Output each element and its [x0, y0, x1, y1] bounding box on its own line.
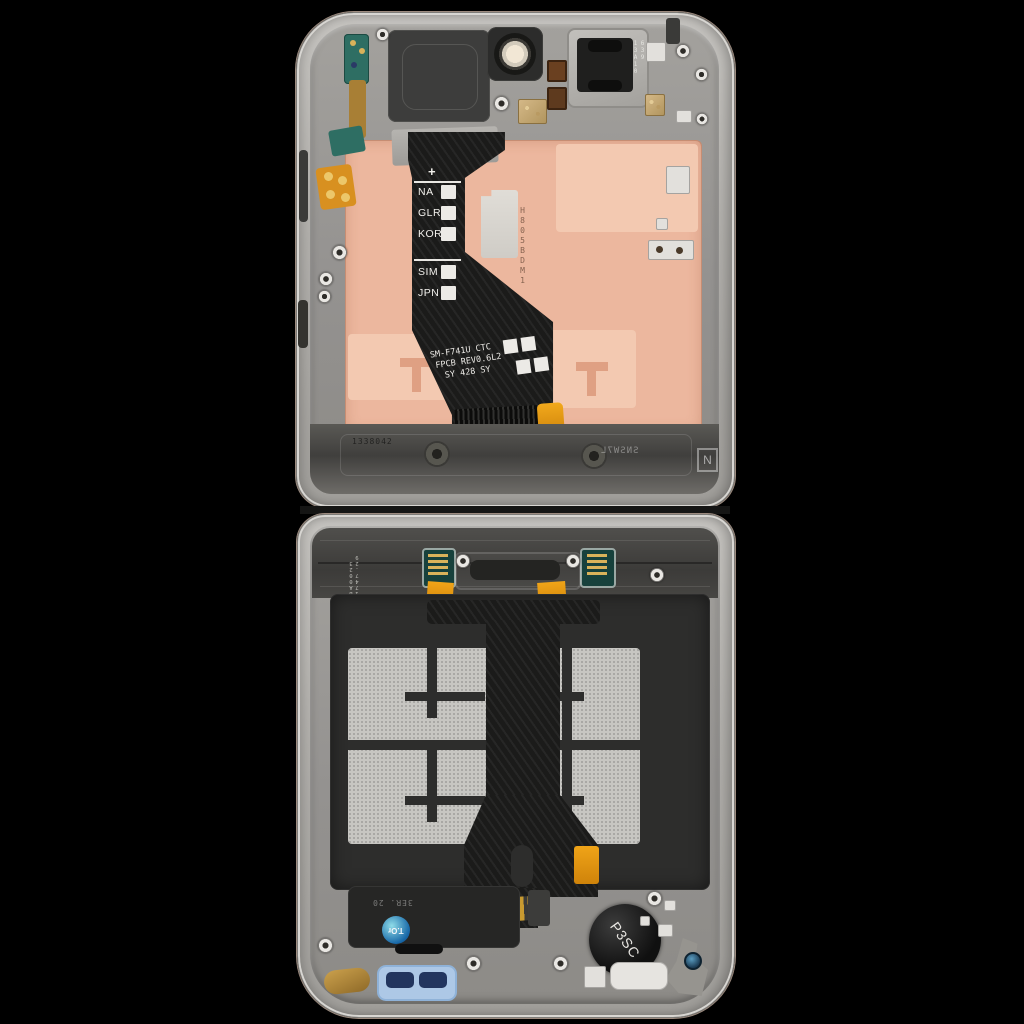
antenna-gold-pad — [645, 94, 665, 116]
screw-boss — [424, 441, 450, 467]
screw — [494, 96, 509, 111]
region-checkbox — [441, 265, 456, 279]
bottom-flex-strap — [486, 620, 560, 805]
screw — [650, 568, 664, 582]
flex-divider-line — [414, 259, 461, 261]
region-label-glr: GLR — [418, 207, 441, 219]
speaker-stamp-text: 3ER. 20 — [372, 898, 413, 907]
gasket-slot — [386, 972, 414, 988]
small-component — [656, 218, 668, 230]
region-label-sim: SIM — [418, 266, 438, 278]
gold-contact-dot — [341, 193, 350, 202]
antenna-contact — [666, 18, 680, 44]
side-antenna-slot — [299, 150, 308, 222]
band-ridge — [320, 540, 710, 541]
screw — [319, 272, 333, 286]
pcb-t-mark — [587, 362, 596, 396]
sensor-pcb-pad — [350, 40, 356, 46]
screw — [318, 290, 331, 303]
region-label-kor: KOR — [418, 228, 442, 240]
region-checkbox — [441, 227, 456, 241]
flex-plus-mark: + — [428, 164, 436, 179]
bracket-two-hole — [648, 240, 694, 260]
small-component — [640, 916, 650, 926]
product-photo-stage: 639 13A10 + NA GLR KOR — [0, 0, 1024, 1024]
sensor-pcb-pad — [351, 62, 357, 68]
region-checkbox — [441, 286, 456, 300]
qc-sticker: T.Or — [382, 916, 410, 944]
small-component — [658, 924, 673, 937]
flex-white-square — [533, 356, 549, 372]
region-checkbox — [441, 206, 456, 220]
loudspeaker-box — [348, 886, 520, 948]
patch-cut-bar — [405, 692, 485, 701]
frame-stamp-right: SNSW7L — [600, 446, 639, 456]
screw — [332, 245, 347, 260]
bracket-hole — [656, 246, 663, 253]
screw — [318, 938, 333, 953]
ic-chip-white — [481, 190, 518, 258]
copper-contact — [547, 60, 567, 82]
flex-white-square — [516, 359, 532, 375]
flex-white-square — [503, 338, 519, 354]
gold-contact-flex — [315, 164, 356, 211]
bottom-edge-code: BA0023 1747.29 — [348, 544, 360, 596]
sensor-pcb — [344, 34, 369, 84]
earpiece-slot-bottom — [588, 80, 622, 91]
board-etch-code: H805BDM1 — [518, 206, 527, 316]
screw — [676, 44, 690, 58]
screw — [695, 68, 708, 81]
screw — [456, 554, 470, 568]
flex-tab-orange — [574, 846, 599, 884]
connector-pins — [428, 554, 448, 578]
speaker-slot — [395, 944, 443, 954]
bottom-flex-slot — [511, 845, 533, 887]
patch-cut-bar — [405, 796, 485, 805]
connector-bracket — [528, 890, 550, 926]
copper-contact — [547, 87, 567, 110]
camera-lens — [494, 33, 536, 75]
screw — [466, 956, 481, 971]
bracket-hole — [676, 247, 683, 254]
bracket-white — [646, 42, 666, 62]
patch-cut-stem — [427, 648, 437, 718]
qc-sticker-text: T.Or — [388, 926, 404, 935]
earpiece-slot-top — [588, 40, 622, 52]
small-component — [664, 900, 676, 911]
gold-contact-dot — [338, 176, 347, 185]
region-label-na: NA — [418, 186, 434, 198]
screw — [553, 956, 568, 971]
screw — [647, 891, 662, 906]
flex-white-square — [520, 336, 536, 352]
region-checkbox — [441, 185, 456, 199]
camera-glass-dot — [684, 952, 702, 970]
small-component — [584, 966, 606, 988]
earpiece-code-text: 639 13A10 — [632, 40, 646, 94]
gold-contact-dot — [326, 190, 335, 199]
connector-pins — [587, 554, 607, 578]
hinge-center-slot — [470, 560, 560, 580]
region-label-jpn: JPN — [418, 287, 439, 299]
frame-letter-n: N — [697, 448, 718, 472]
screw — [696, 113, 708, 125]
frame-stamp-left: 1338042 — [352, 437, 393, 446]
label-white — [666, 166, 690, 194]
gasket-slot — [419, 972, 447, 988]
vibration-motor-label: P3SC — [607, 919, 643, 961]
white-pill — [610, 962, 668, 990]
patch-cut-stem — [427, 750, 437, 822]
screw — [566, 554, 580, 568]
contact-gold-pad — [518, 99, 547, 124]
screw — [376, 28, 389, 41]
hinge-band-outline — [340, 434, 692, 476]
pcb-t-mark — [412, 358, 421, 392]
flex-divider-line — [414, 181, 461, 183]
sensor-pcb-pad — [359, 48, 365, 54]
side-key-slot — [298, 300, 308, 348]
gold-contact-dot — [324, 172, 333, 181]
coil-housing-inner-outline — [402, 44, 478, 110]
hinge-seam — [300, 506, 730, 514]
label-white — [676, 110, 692, 123]
